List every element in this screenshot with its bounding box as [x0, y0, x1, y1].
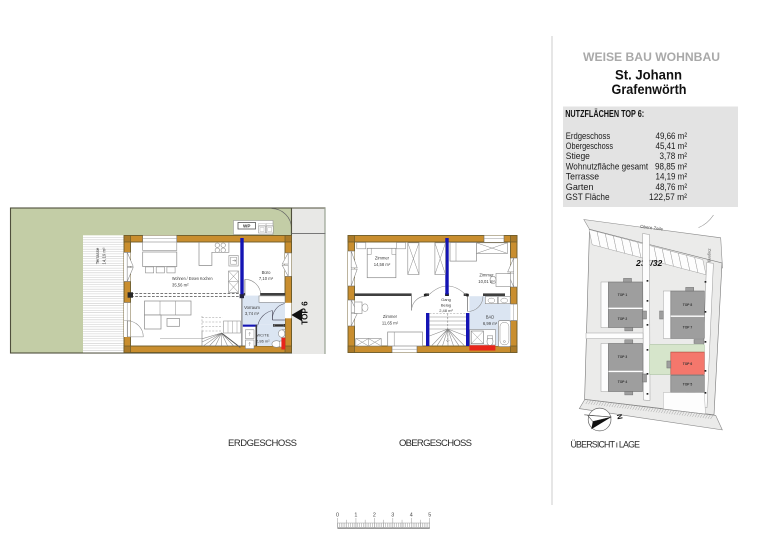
- svg-text:Terrasse: Terrasse: [95, 247, 100, 264]
- svg-text:GST Fläche: GST Fläche: [566, 192, 610, 203]
- svg-text:N: N: [615, 413, 625, 420]
- svg-text:WC/TE: WC/TE: [256, 333, 269, 338]
- svg-text:122,57 m²: 122,57 m²: [649, 192, 688, 203]
- svg-text:Zugang: Zugang: [708, 249, 713, 263]
- svg-text:6,99 m²: 6,99 m²: [483, 321, 498, 326]
- svg-text:Büro: Büro: [262, 270, 272, 275]
- svg-text:0: 0: [336, 512, 339, 518]
- svg-text:TOP 6: TOP 6: [301, 301, 310, 325]
- svg-text:TOP 1: TOP 1: [618, 293, 628, 297]
- svg-text:2,86 m²: 2,86 m²: [256, 339, 270, 344]
- svg-text:Gang: Gang: [441, 297, 451, 302]
- svg-text:Vorraum: Vorraum: [244, 305, 260, 310]
- svg-text:ERDGESCHOSS: ERDGESCHOSS: [228, 438, 297, 449]
- svg-text:Belag: Belag: [441, 303, 451, 308]
- svg-text:4: 4: [410, 512, 413, 518]
- svg-text:Zimmer: Zimmer: [383, 314, 398, 319]
- svg-text:TOP 8: TOP 8: [683, 303, 693, 307]
- svg-text:TOP 4: TOP 4: [618, 380, 628, 384]
- svg-text:TOP 5: TOP 5: [683, 383, 693, 387]
- svg-text:Grafenwörth: Grafenwörth: [612, 82, 687, 98]
- svg-text:3,74 m²: 3,74 m²: [245, 311, 260, 316]
- svg-text:WEISE BAU WOHNBAU: WEISE BAU WOHNBAU: [583, 50, 720, 64]
- svg-text:BAD: BAD: [486, 315, 495, 320]
- svg-text:14,19 m²: 14,19 m²: [102, 247, 107, 265]
- svg-text:TOP 2: TOP 2: [618, 317, 628, 321]
- svg-text:ÜBERSICHT ı LAGE: ÜBERSICHT ı LAGE: [571, 440, 641, 450]
- svg-text:NUTZFLÄCHEN TOP 6:: NUTZFLÄCHEN TOP 6:: [565, 109, 644, 120]
- svg-text:Wohnen / Essen Kochen: Wohnen / Essen Kochen: [172, 276, 213, 281]
- svg-text:14,58 m²: 14,58 m²: [374, 262, 391, 267]
- svg-text:TOP 6: TOP 6: [683, 362, 693, 366]
- svg-text:1: 1: [354, 512, 357, 518]
- svg-text:2,48 m²: 2,48 m²: [439, 308, 453, 313]
- svg-text:11,65 m²: 11,65 m²: [382, 320, 399, 325]
- svg-text:TOP 7: TOP 7: [683, 326, 693, 330]
- svg-text:35,56 m²: 35,56 m²: [172, 282, 189, 287]
- svg-text:TOP 3: TOP 3: [618, 355, 628, 359]
- svg-text:WP: WP: [243, 224, 250, 229]
- svg-text:7,10 m²: 7,10 m²: [259, 276, 274, 281]
- svg-text:2: 2: [373, 512, 376, 518]
- svg-text:10,01 m²: 10,01 m²: [478, 279, 495, 284]
- svg-text:Zimmer: Zimmer: [479, 273, 494, 278]
- svg-text:5: 5: [428, 512, 431, 518]
- svg-text:OBERGESCHOSS: OBERGESCHOSS: [399, 438, 472, 449]
- svg-text:Zimmer: Zimmer: [375, 256, 390, 261]
- svg-text:3: 3: [391, 512, 394, 518]
